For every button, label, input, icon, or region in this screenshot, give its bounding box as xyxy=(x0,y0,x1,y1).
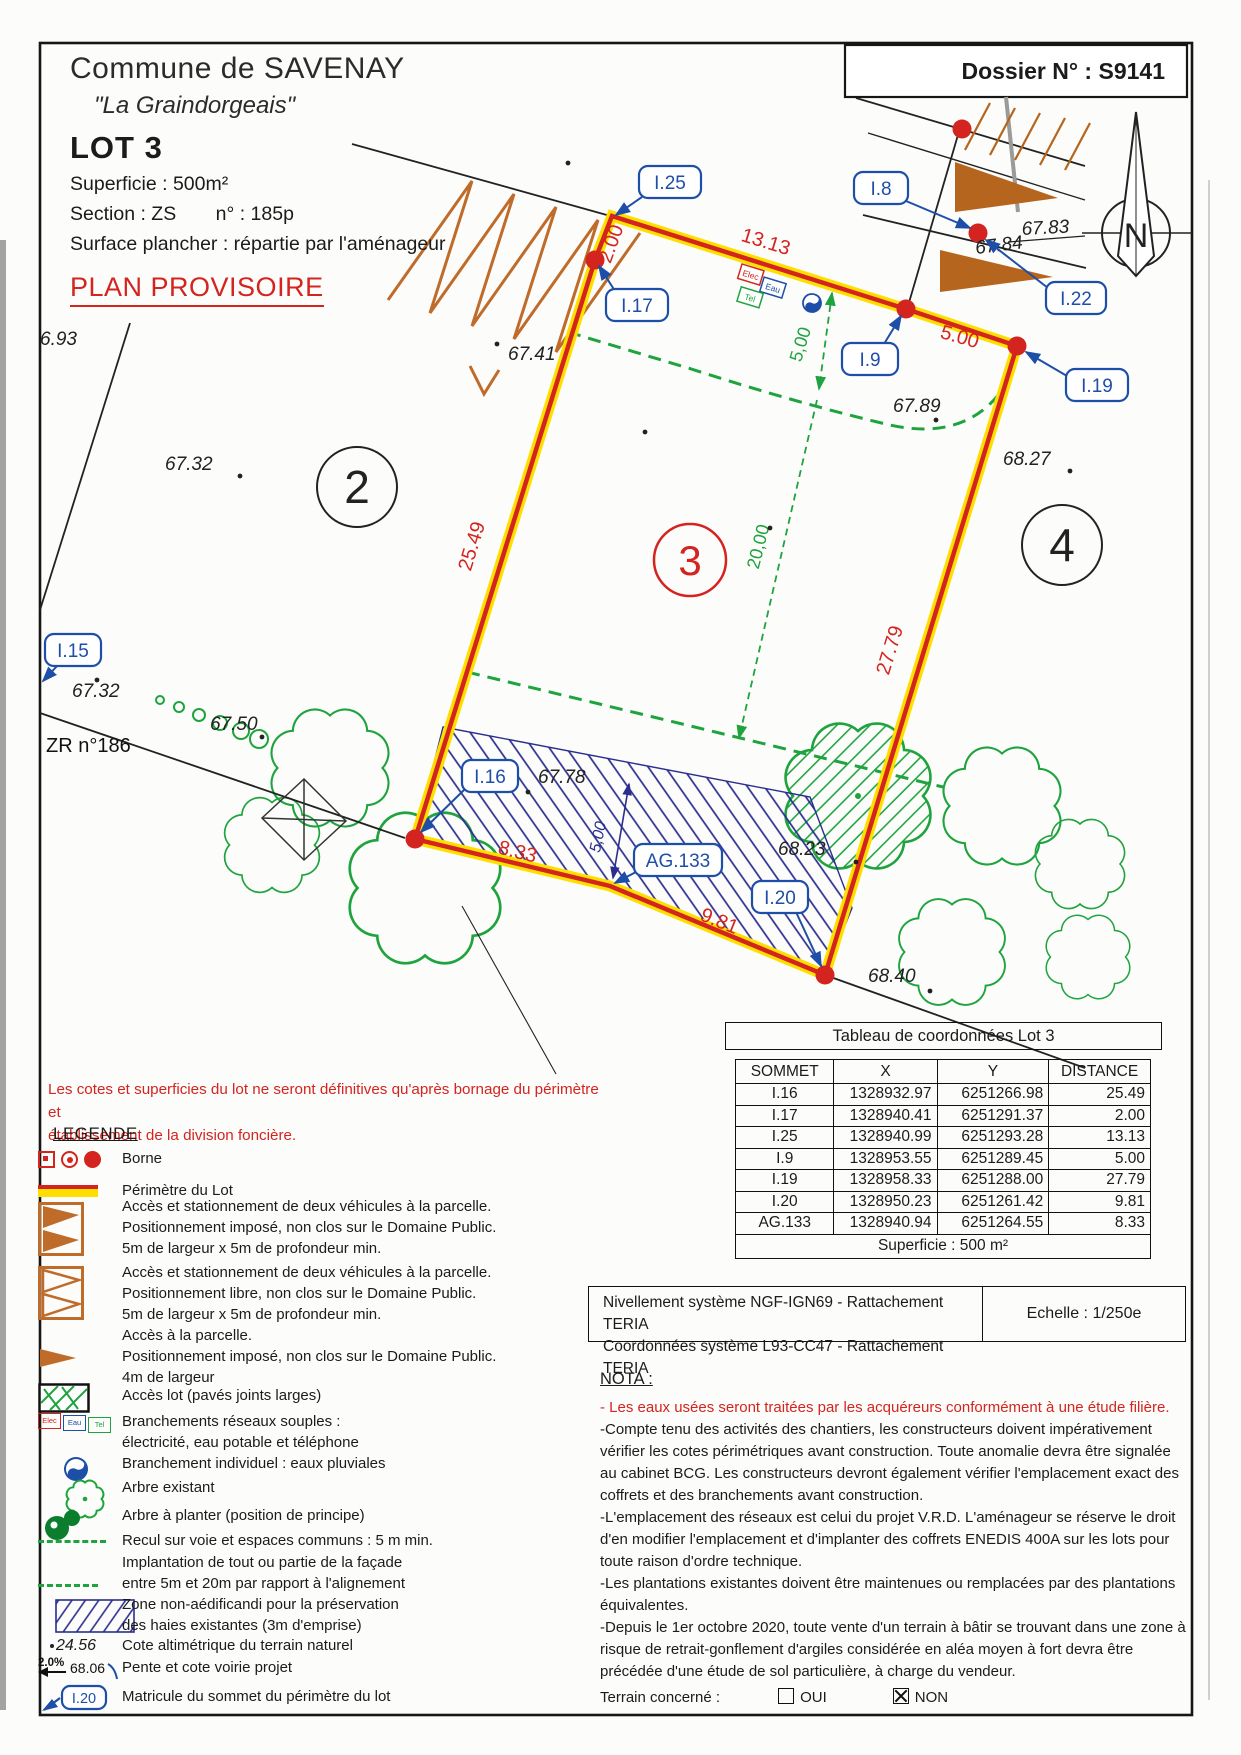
svg-text:AG.133: AG.133 xyxy=(646,851,710,872)
superficie: Superficie : 500m² xyxy=(70,173,446,196)
legend-label: 5m de largeur x 5m de profondeur min. xyxy=(122,1238,592,1259)
parcel-4: 4 xyxy=(1022,505,1102,585)
matricule-sample-icon: I.20 xyxy=(38,1683,118,1713)
legend-label: des haies existantes (3m d'emprise) xyxy=(122,1615,592,1636)
non-label: NON xyxy=(915,1689,948,1706)
survey-plan-page: Elec Eau Tel 2 4 3 ZR n°186 25.49 2.00 1… xyxy=(0,0,1241,1755)
borne-icon xyxy=(38,1151,118,1168)
matricule-i19: I.19 xyxy=(1026,352,1128,401)
svg-text:I.15: I.15 xyxy=(57,641,89,662)
red-disclaimer-line: Les cotes et superficies du lot ne seron… xyxy=(48,1078,608,1124)
table-footer: Superficie : 500 m² xyxy=(736,1234,1151,1258)
nota-line: -Depuis le 1er octobre 2020, toute vente… xyxy=(600,1617,1192,1639)
svg-text:2.0%: 2.0% xyxy=(38,1657,64,1669)
svg-text:I.16: I.16 xyxy=(474,767,506,788)
nota-line: toute raison d'ordre technique. xyxy=(600,1551,1192,1573)
coordinates-table-title: Tableau de coordonnées Lot 3 xyxy=(725,1022,1162,1050)
svg-text:67.78: 67.78 xyxy=(538,767,586,788)
svg-text:2: 2 xyxy=(344,461,370,513)
svg-text:5.00: 5.00 xyxy=(938,321,981,353)
section-numero: n° : 185p xyxy=(216,203,294,225)
svg-text:27.79: 27.79 xyxy=(872,623,908,677)
legend-label: 5m de largeur x 5m de profondeur min. xyxy=(122,1304,592,1325)
scan-edge-shadow xyxy=(0,240,6,1710)
nota-line: -Les plantations existantes doivent être… xyxy=(600,1573,1192,1595)
svg-text:I.9: I.9 xyxy=(859,350,880,371)
legend-label: Arbre existant xyxy=(122,1477,592,1498)
svg-text:68.06: 68.06 xyxy=(70,1660,105,1676)
col-x: X xyxy=(834,1060,937,1084)
checkbox-oui xyxy=(778,1688,794,1704)
svg-text:67.83: 67.83 xyxy=(1021,217,1070,240)
parking-free-icon xyxy=(38,1266,84,1320)
table-row: I.251328940.996251293.2813.13 xyxy=(736,1127,1151,1149)
legend-label: Recul sur voie et espaces communs : 5 m … xyxy=(122,1530,592,1551)
legend-label: Arbre à planter (position de principe) xyxy=(122,1505,592,1526)
coordinates-grid: SOMMET X Y DISTANCE I.161328932.97625126… xyxy=(735,1059,1151,1259)
svg-text:5,00: 5,00 xyxy=(786,325,815,364)
legend-label: Positionnement libre, non clos sur le Do… xyxy=(122,1283,592,1304)
table-row: I.201328950.236251261.429.81 xyxy=(736,1191,1151,1213)
svg-text:I.19: I.19 xyxy=(1081,376,1113,397)
nota-line: d'en modifier l'emplacement et d'implant… xyxy=(600,1529,1192,1551)
table-header-row: SOMMET X Y DISTANCE xyxy=(736,1060,1151,1084)
legend-label: Accès lot (pavés joints larges) xyxy=(122,1385,592,1406)
matricule-i25: I.25 xyxy=(616,166,701,215)
legend-label: Accès et stationnement de deux véhicules… xyxy=(122,1262,592,1283)
legend-label: Positionnement imposé, non clos sur le D… xyxy=(122,1346,592,1367)
commune-title: Commune de SAVENAY xyxy=(70,52,446,86)
terrain-concerne-row: Terrain concerné : OUI NON xyxy=(600,1687,1192,1709)
lieu-dit: "La Graindorgeais" xyxy=(94,92,446,120)
svg-text:67.32: 67.32 xyxy=(72,681,120,702)
existing-structure xyxy=(262,779,346,860)
svg-text:67.89: 67.89 xyxy=(893,396,941,417)
table-row: I.161328932.976251266.9825.49 xyxy=(736,1084,1151,1106)
nota-line: -L'emplacement des réseaux est celui du … xyxy=(600,1507,1192,1529)
georef-box: Nivellement système NGF-IGN69 - Rattache… xyxy=(588,1286,1186,1342)
legend-label: électricité, eau potable et téléphone xyxy=(122,1432,592,1453)
legend-label: Matricule du sommet du périmètre du lot xyxy=(122,1686,592,1707)
col-sommet: SOMMET xyxy=(736,1060,834,1084)
col-y: Y xyxy=(937,1060,1049,1084)
matricule-i9: I.9 xyxy=(842,316,901,375)
svg-text:3: 3 xyxy=(678,537,701,584)
legend-label: Branchements réseaux souples : xyxy=(122,1411,592,1432)
svg-text:67.84: 67.84 xyxy=(974,232,1024,259)
svg-text:I.20: I.20 xyxy=(72,1691,96,1707)
nota-title: NOTA : xyxy=(600,1368,1192,1390)
nota-line: au cabinet BCG. Les constructeurs devron… xyxy=(600,1463,1192,1485)
svg-text:I.17: I.17 xyxy=(621,296,653,317)
svg-text:68.40: 68.40 xyxy=(868,966,916,987)
legend-label: Accès à la parcelle. xyxy=(122,1325,592,1346)
svg-text:6.93: 6.93 xyxy=(40,329,77,350)
legend-label: Cote altimétrique du terrain naturel xyxy=(122,1635,592,1656)
rainwater-connection-icon xyxy=(800,291,825,316)
parking-imposed-icon xyxy=(38,1202,84,1256)
nota-line: vérifier les cotes périmétriques avant c… xyxy=(600,1441,1192,1463)
nota-line: précédée d'une étude de sol particulière… xyxy=(600,1661,1192,1683)
legend-label: Borne xyxy=(122,1148,592,1169)
svg-text:25.49: 25.49 xyxy=(454,519,490,573)
matricule-i15: I.15 xyxy=(43,634,101,681)
legend-label: Accès et stationnement de deux véhicules… xyxy=(122,1196,592,1217)
checkbox-non xyxy=(893,1688,909,1704)
table-row: I.171328940.416251291.372.00 xyxy=(736,1105,1151,1127)
svg-text:67.41: 67.41 xyxy=(508,344,556,365)
parcel-3: 3 xyxy=(654,524,726,596)
dossier-number: Dossier N° : S9141 xyxy=(845,45,1187,97)
svg-text:2.00: 2.00 xyxy=(594,222,628,266)
nota-line: coffrets et des branchements avant const… xyxy=(600,1485,1192,1507)
setback-line-icon xyxy=(38,1540,106,1543)
north-arrow: N xyxy=(1082,112,1192,276)
nota-line: équivalentes. xyxy=(600,1595,1192,1617)
svg-text:67.50: 67.50 xyxy=(210,714,258,735)
utility-boxes-icon: ElecEauTel xyxy=(38,1413,118,1433)
parcel-2: 2 xyxy=(317,447,397,527)
svg-text:N: N xyxy=(1124,217,1149,255)
coordinates-table: Tableau de coordonnées Lot 3 SOMMET X Y … xyxy=(725,1022,1162,1259)
facade-line-icon xyxy=(38,1584,98,1587)
title-block: Commune de SAVENAY "La Graindorgeais" LO… xyxy=(70,52,446,307)
legend-title: LEGENDE xyxy=(53,1124,138,1144)
elevation-sample-icon: 24.56 xyxy=(50,1637,130,1655)
nota-section: NOTA : - Les eaux usées seront traitées … xyxy=(600,1368,1192,1709)
legend-label: entre 5m et 20m par rapport à l'aligneme… xyxy=(122,1573,592,1594)
svg-text:I.25: I.25 xyxy=(654,173,686,194)
slope-icon: 2.0% 68.06 xyxy=(38,1655,118,1685)
oui-label: OUI xyxy=(800,1689,827,1706)
nota-line: -Compte tenu des activités des chantiers… xyxy=(600,1419,1192,1441)
lot-number: LOT 3 xyxy=(70,130,446,166)
nivellement-system: Nivellement système NGF-IGN69 - Rattache… xyxy=(603,1292,982,1336)
plan-provisoire-stamp: PLAN PROVISOIRE xyxy=(70,272,324,307)
green-dimensions: 5,00 20,00 xyxy=(743,325,815,571)
table-row: AG.1331328940.946251264.558.33 xyxy=(736,1213,1151,1235)
access-arrow-icon xyxy=(38,1347,78,1369)
svg-text:67.32: 67.32 xyxy=(165,454,213,475)
svg-text:I.20: I.20 xyxy=(764,888,796,909)
svg-text:I.8: I.8 xyxy=(870,179,891,200)
col-distance: DISTANCE xyxy=(1049,1060,1151,1084)
setback-lines xyxy=(467,293,1000,787)
section-label: Section : ZS xyxy=(70,203,176,225)
paved-access-icon xyxy=(38,1383,90,1413)
nota-line-red: - Les eaux usées seront traitées par les… xyxy=(600,1397,1192,1419)
svg-text:4: 4 xyxy=(1049,519,1075,571)
terrain-label: Terrain concerné : xyxy=(600,1687,720,1709)
legend-label: Zone non-aédificandi pour la préservatio… xyxy=(122,1594,592,1615)
table-row: I.191328958.336251288.0027.79 xyxy=(736,1170,1151,1192)
svg-text:68.27: 68.27 xyxy=(1003,449,1052,470)
legend-label: Implantation de tout ou partie de la faç… xyxy=(122,1552,592,1573)
nota-line: risque de retrait-gonflement d'argiles c… xyxy=(600,1639,1192,1661)
matricule-i8: I.8 xyxy=(854,172,970,228)
table-row: I.91328953.556251289.455.00 xyxy=(736,1148,1151,1170)
surface-plancher: Surface plancher : répartie par l'aménag… xyxy=(70,233,446,256)
legend-label: Pente et cote voirie projet xyxy=(122,1657,592,1678)
svg-text:I.22: I.22 xyxy=(1060,289,1092,310)
svg-text:68.23: 68.23 xyxy=(778,839,826,860)
section: Section : ZS n° : 185p xyxy=(70,203,446,226)
scale-label: Echelle : 1/250e xyxy=(982,1287,1185,1341)
perimeter-icon xyxy=(38,1185,98,1197)
legend-label: Positionnement imposé, non clos sur le D… xyxy=(122,1217,592,1238)
legend-label: Branchement individuel : eaux pluviales xyxy=(122,1453,592,1474)
zr-parcel-label: ZR n°186 xyxy=(46,735,131,757)
